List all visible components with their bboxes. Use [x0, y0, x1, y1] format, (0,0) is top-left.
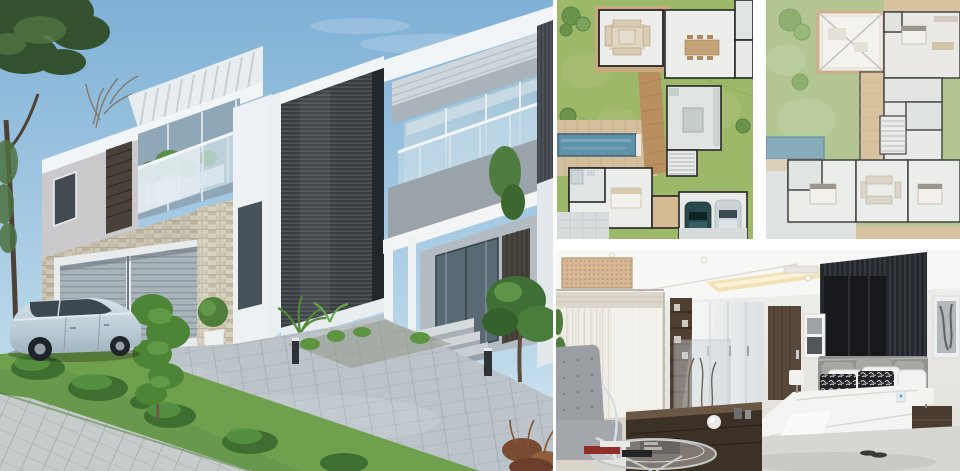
book	[584, 446, 620, 454]
dark-blind	[824, 276, 886, 362]
edge-louver	[537, 20, 553, 184]
book	[622, 450, 652, 457]
center-window	[238, 201, 262, 310]
bedroom-interior-photo	[556, 250, 960, 471]
living-pavilion	[595, 6, 669, 72]
table-lamp	[789, 370, 804, 385]
table-lamp	[918, 388, 934, 404]
louver-shutter	[106, 141, 132, 234]
perforated-panel	[562, 258, 632, 288]
sphere-ornament	[707, 415, 721, 429]
villa-exterior-photo	[0, 0, 553, 471]
ac-vent	[784, 266, 818, 273]
first-floor-plan	[766, 0, 960, 239]
property-collage	[0, 0, 960, 471]
driveway-apron	[679, 228, 747, 239]
ground-floor-plan	[557, 0, 753, 239]
swimming-pool	[558, 134, 636, 156]
parked-car	[8, 298, 141, 362]
upper-window	[54, 172, 76, 226]
